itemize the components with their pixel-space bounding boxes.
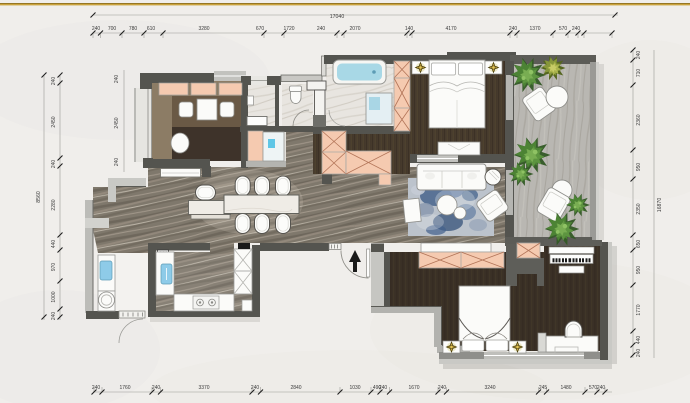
- svg-text:8560: 8560: [36, 191, 42, 203]
- svg-text:240: 240: [92, 26, 101, 32]
- svg-text:710: 710: [636, 69, 642, 78]
- svg-text:245: 245: [539, 385, 548, 391]
- svg-text:1480: 1480: [560, 385, 571, 391]
- svg-text:240: 240: [509, 26, 518, 32]
- svg-text:780: 780: [129, 26, 138, 32]
- svg-text:650: 650: [636, 240, 642, 249]
- svg-text:1720: 1720: [283, 26, 294, 32]
- svg-text:970: 970: [51, 263, 57, 272]
- svg-text:1000: 1000: [51, 291, 57, 302]
- svg-text:1670: 1670: [408, 385, 419, 391]
- svg-text:2360: 2360: [636, 114, 642, 125]
- svg-text:950: 950: [636, 266, 642, 275]
- svg-text:1370: 1370: [529, 26, 540, 32]
- svg-text:570: 570: [559, 26, 568, 32]
- svg-text:240: 240: [92, 385, 101, 391]
- svg-text:240: 240: [379, 385, 388, 391]
- svg-text:2450: 2450: [114, 117, 120, 128]
- svg-text:2840: 2840: [290, 385, 301, 391]
- svg-text:240: 240: [251, 385, 260, 391]
- svg-text:2350: 2350: [636, 203, 642, 214]
- svg-text:1030: 1030: [349, 385, 360, 391]
- svg-text:670: 670: [256, 26, 265, 32]
- svg-text:240: 240: [114, 75, 120, 84]
- svg-text:17040: 17040: [330, 14, 345, 20]
- svg-text:240: 240: [438, 385, 447, 391]
- svg-text:240: 240: [597, 385, 606, 391]
- svg-text:1760: 1760: [119, 385, 130, 391]
- svg-text:240: 240: [51, 77, 57, 86]
- svg-text:240: 240: [572, 26, 581, 32]
- svg-text:610: 610: [147, 26, 156, 32]
- svg-text:240: 240: [51, 160, 57, 169]
- svg-text:16870: 16870: [657, 198, 663, 213]
- svg-text:140: 140: [405, 26, 414, 32]
- svg-text:240: 240: [317, 26, 326, 32]
- svg-text:1770: 1770: [636, 304, 642, 315]
- svg-text:240: 240: [114, 158, 120, 167]
- svg-text:3370: 3370: [198, 385, 209, 391]
- svg-text:2070: 2070: [349, 26, 360, 32]
- svg-text:240: 240: [636, 51, 642, 60]
- svg-text:4170: 4170: [445, 26, 456, 32]
- svg-text:950: 950: [636, 163, 642, 172]
- svg-text:2280: 2280: [51, 199, 57, 210]
- svg-text:440: 440: [51, 240, 57, 249]
- svg-text:240: 240: [636, 349, 642, 358]
- svg-text:440: 440: [636, 336, 642, 345]
- svg-text:700: 700: [108, 26, 117, 32]
- svg-text:3240: 3240: [484, 385, 495, 391]
- svg-text:3280: 3280: [198, 26, 209, 32]
- svg-text:2450: 2450: [51, 116, 57, 127]
- svg-text:240: 240: [51, 312, 57, 321]
- svg-text:240: 240: [152, 385, 161, 391]
